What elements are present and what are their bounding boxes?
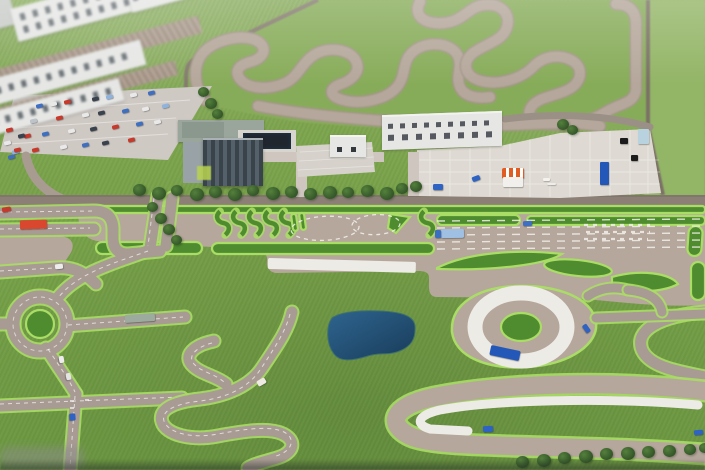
scene [0,0,705,470]
campus-connectors [262,142,419,197]
parking-access-road [26,156,62,199]
hairpin-track [396,384,705,454]
terrain-graphics [0,0,705,470]
roundabout-island [26,310,54,338]
hairpin-white-stripe [420,400,698,431]
small-parking-pad [296,142,375,177]
serpentine-road [161,312,292,468]
skid-pad-island [501,313,541,341]
pond [328,311,415,360]
visitor-parking-lot [0,86,212,199]
